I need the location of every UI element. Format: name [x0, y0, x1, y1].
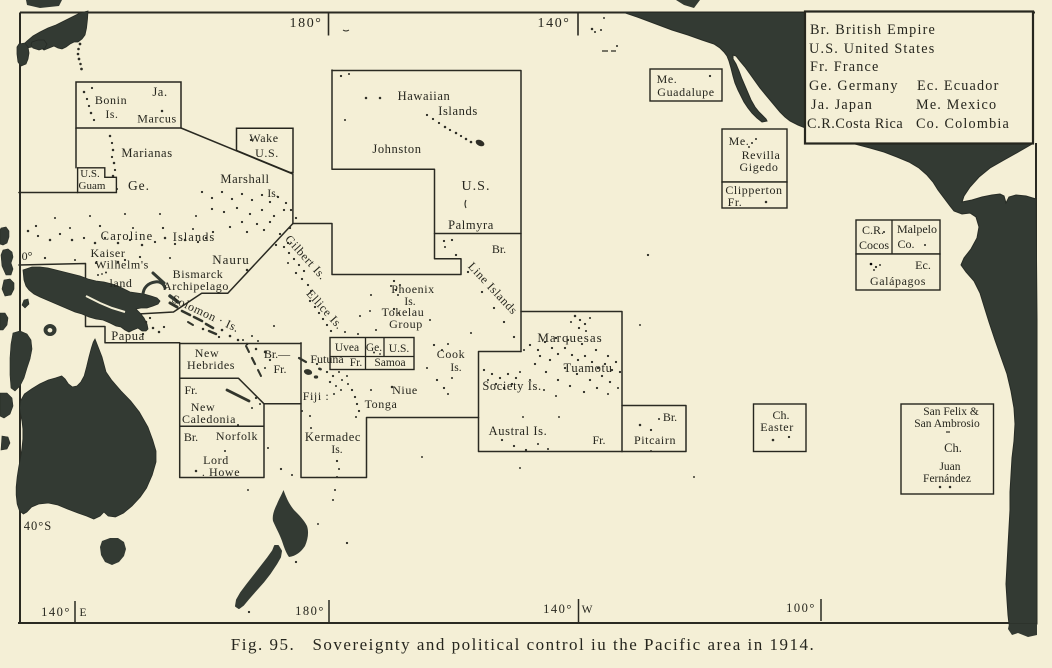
svg-text:Fr.: Fr.: [350, 357, 363, 369]
svg-text:San Ambrosio: San Ambrosio: [914, 418, 980, 430]
svg-text:Guadalupe: Guadalupe: [657, 85, 714, 99]
svg-text:Is.: Is.: [106, 109, 119, 121]
svg-text:Kermadec: Kermadec: [305, 430, 361, 444]
svg-text:C.R.Costa Rica: C.R.Costa Rica: [807, 116, 903, 132]
svg-text:Ja. Japan: Ja. Japan: [811, 97, 873, 113]
svg-text:Marshall: Marshall: [220, 172, 269, 186]
svg-text:U.S.: U.S.: [80, 168, 100, 180]
svg-text:Fiji :: Fiji :: [303, 389, 330, 403]
svg-text:Is.: Is.: [331, 444, 342, 456]
svg-text:Futuna: Futuna: [310, 352, 344, 366]
svg-text:San Felix &: San Felix &: [923, 406, 979, 418]
svg-text:Phoenix: Phoenix: [391, 282, 435, 296]
svg-text:Marianas: Marianas: [121, 146, 172, 160]
svg-text:W: W: [582, 604, 593, 616]
svg-text:40°S: 40°S: [24, 519, 52, 533]
svg-text:Society Is.: Society Is.: [482, 379, 541, 393]
svg-text:Cocos: Cocos: [859, 238, 889, 252]
svg-text:Ec.: Ec.: [915, 258, 931, 272]
svg-text:Wilhelm's: Wilhelm's: [95, 258, 149, 272]
svg-text:Fr.: Fr.: [184, 383, 197, 397]
svg-text:Hawaiian: Hawaiian: [398, 89, 451, 103]
svg-text:Tonga: Tonga: [365, 397, 398, 411]
svg-text:Easter: Easter: [760, 420, 794, 434]
svg-text:Nauru: Nauru: [212, 252, 250, 267]
svg-text:180°: 180°: [290, 16, 323, 31]
svg-text:Niue: Niue: [392, 383, 418, 397]
svg-text:140°: 140°: [543, 602, 573, 616]
svg-text:Fernández: Fernández: [923, 473, 971, 485]
svg-text:100°: 100°: [786, 601, 816, 615]
svg-text:Caledonia: Caledonia: [182, 412, 236, 426]
svg-text:Ja.: Ja.: [152, 85, 167, 99]
svg-text:Bonin: Bonin: [95, 93, 127, 107]
svg-text:Hebrides: Hebrides: [187, 358, 235, 372]
svg-text:Fr.: Fr.: [728, 195, 743, 209]
svg-text:Br.: Br.: [663, 410, 677, 424]
svg-text:. Howe: . Howe: [202, 465, 240, 479]
svg-text:Ec. Ecuador: Ec. Ecuador: [917, 78, 1000, 94]
svg-text:Ge.: Ge.: [128, 178, 150, 193]
svg-text:0°: 0°: [22, 249, 33, 263]
svg-text:U.S. United States: U.S. United States: [809, 41, 935, 57]
svg-text:Johnston: Johnston: [372, 142, 421, 156]
svg-text:Pitcairn: Pitcairn: [634, 433, 676, 447]
svg-text:Wake: Wake: [249, 131, 278, 145]
svg-text:Is.: Is.: [267, 188, 278, 200]
svg-text:Cook: Cook: [437, 347, 465, 361]
svg-text:180°: 180°: [295, 604, 325, 618]
svg-text:Juan: Juan: [939, 461, 960, 473]
svg-text:Ge. Germany: Ge. Germany: [809, 78, 899, 94]
svg-text:Me.: Me.: [657, 72, 678, 86]
svg-text:Fig. 95. Sovereignty and pol: Fig. 95. Sovereignty and political contr…: [231, 635, 815, 654]
svg-text:Norfolk: Norfolk: [216, 429, 258, 443]
svg-text:Br.: Br.: [492, 242, 506, 256]
svg-text:Palmyra: Palmyra: [448, 218, 494, 232]
svg-text:Ch.: Ch.: [944, 441, 962, 455]
svg-text:Br.—: Br.—: [264, 347, 291, 361]
svg-text:Guam: Guam: [79, 180, 106, 192]
svg-text:Islands: Islands: [173, 230, 215, 244]
svg-text:Gigedo: Gigedo: [740, 160, 779, 174]
svg-text:Archipelago: Archipelago: [163, 279, 229, 293]
svg-text:Co.: Co.: [897, 237, 914, 251]
svg-text:140°: 140°: [41, 605, 71, 619]
svg-text:Br.: Br.: [184, 430, 198, 444]
svg-text:Me.: Me.: [729, 134, 750, 148]
svg-text:140°: 140°: [538, 16, 571, 31]
svg-text:Papua: Papua: [111, 329, 145, 343]
svg-text:Islands: Islands: [438, 104, 478, 118]
svg-text:Fr.: Fr.: [592, 433, 605, 447]
svg-text:E: E: [79, 607, 86, 619]
svg-text:Fr. France: Fr. France: [810, 59, 880, 75]
svg-text:Br. British Empire: Br. British Empire: [810, 22, 936, 38]
svg-text:Austral Is.: Austral Is.: [489, 424, 548, 438]
svg-text:Tuamotu: Tuamotu: [564, 361, 613, 375]
svg-text:Marcus: Marcus: [137, 112, 177, 126]
svg-text:Marquesas: Marquesas: [537, 330, 602, 345]
svg-text:Fr.: Fr.: [273, 362, 286, 376]
svg-text:Samoa: Samoa: [374, 357, 405, 369]
svg-text:Malpelo: Malpelo: [897, 222, 937, 236]
svg-text:Co. Colombia: Co. Colombia: [916, 116, 1010, 132]
svg-text:Galápagos: Galápagos: [870, 274, 926, 288]
svg-text:Me. Mexico: Me. Mexico: [916, 97, 997, 113]
svg-text:Is.: Is.: [450, 362, 461, 374]
svg-text:Group: Group: [389, 317, 423, 331]
svg-text:U.S.: U.S.: [255, 146, 279, 160]
svg-text:U.S.: U.S.: [389, 343, 410, 355]
svg-text:C.R.: C.R.: [862, 223, 884, 237]
svg-text:U.S.: U.S.: [462, 179, 491, 194]
svg-text:land: land: [109, 276, 132, 290]
svg-text:Caroline: Caroline: [101, 229, 154, 243]
